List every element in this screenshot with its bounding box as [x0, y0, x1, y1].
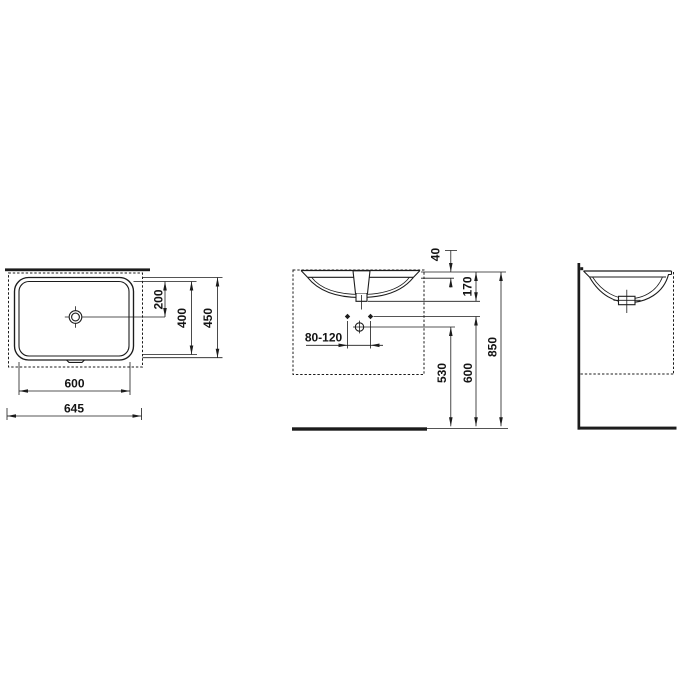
- dimension-530: 530: [435, 327, 453, 426]
- washbasin-drawing: 200 400 450 600 645: [0, 0, 700, 700]
- wall-line: [5, 268, 150, 271]
- dimension-450: 450: [201, 278, 219, 358]
- dimension-40: 40: [429, 248, 458, 288]
- faucet-hole-markers: [345, 314, 373, 319]
- floor-line-side: [578, 427, 677, 430]
- dim-label-600-top: 600: [64, 377, 84, 391]
- dimension-600-front-view: 600: [461, 317, 478, 427]
- front-view: 80-120 40 170 530 600: [292, 248, 508, 431]
- basin-front-profile: [301, 271, 420, 310]
- basin-outer-rim: [15, 278, 134, 361]
- drain-symbol: [65, 306, 165, 327]
- dimension-850: 850: [486, 272, 503, 426]
- dimension-170: 170: [461, 272, 478, 301]
- dim-label-80-120: 80-120: [305, 331, 343, 345]
- top-view: 200 400 450 600 645: [5, 268, 223, 420]
- dim-label-530: 530: [435, 363, 449, 383]
- basin-side-profile: [580, 267, 671, 313]
- counter-dashed-outline-side: [581, 272, 674, 374]
- dim-label-170: 170: [461, 276, 475, 296]
- dimension-80-120: 80-120: [305, 321, 383, 349]
- drain-column: [353, 271, 370, 294]
- dim-label-200: 200: [152, 289, 166, 309]
- dim-label-600-front: 600: [461, 363, 475, 383]
- dim-label-645: 645: [64, 402, 84, 416]
- dim-label-40: 40: [429, 248, 443, 262]
- dimension-400: 400: [175, 282, 193, 355]
- drain-outlet-symbol: [353, 321, 366, 334]
- side-view: [578, 263, 677, 430]
- dimension-600-top-view: 600: [19, 362, 130, 395]
- floor-line-front: [292, 427, 427, 430]
- wall-line-side: [578, 263, 581, 430]
- dimension-200: 200: [152, 282, 167, 318]
- dim-label-450: 450: [201, 308, 215, 328]
- dim-label-400: 400: [175, 308, 189, 328]
- extension-lines-front: [366, 272, 506, 327]
- basin-inner-rim: [19, 282, 129, 357]
- technical-drawing-canvas: 200 400 450 600 645: [0, 0, 700, 700]
- dimension-645: 645: [7, 402, 142, 421]
- dim-label-850: 850: [486, 337, 500, 357]
- cutout-dashed-outline: [9, 273, 143, 367]
